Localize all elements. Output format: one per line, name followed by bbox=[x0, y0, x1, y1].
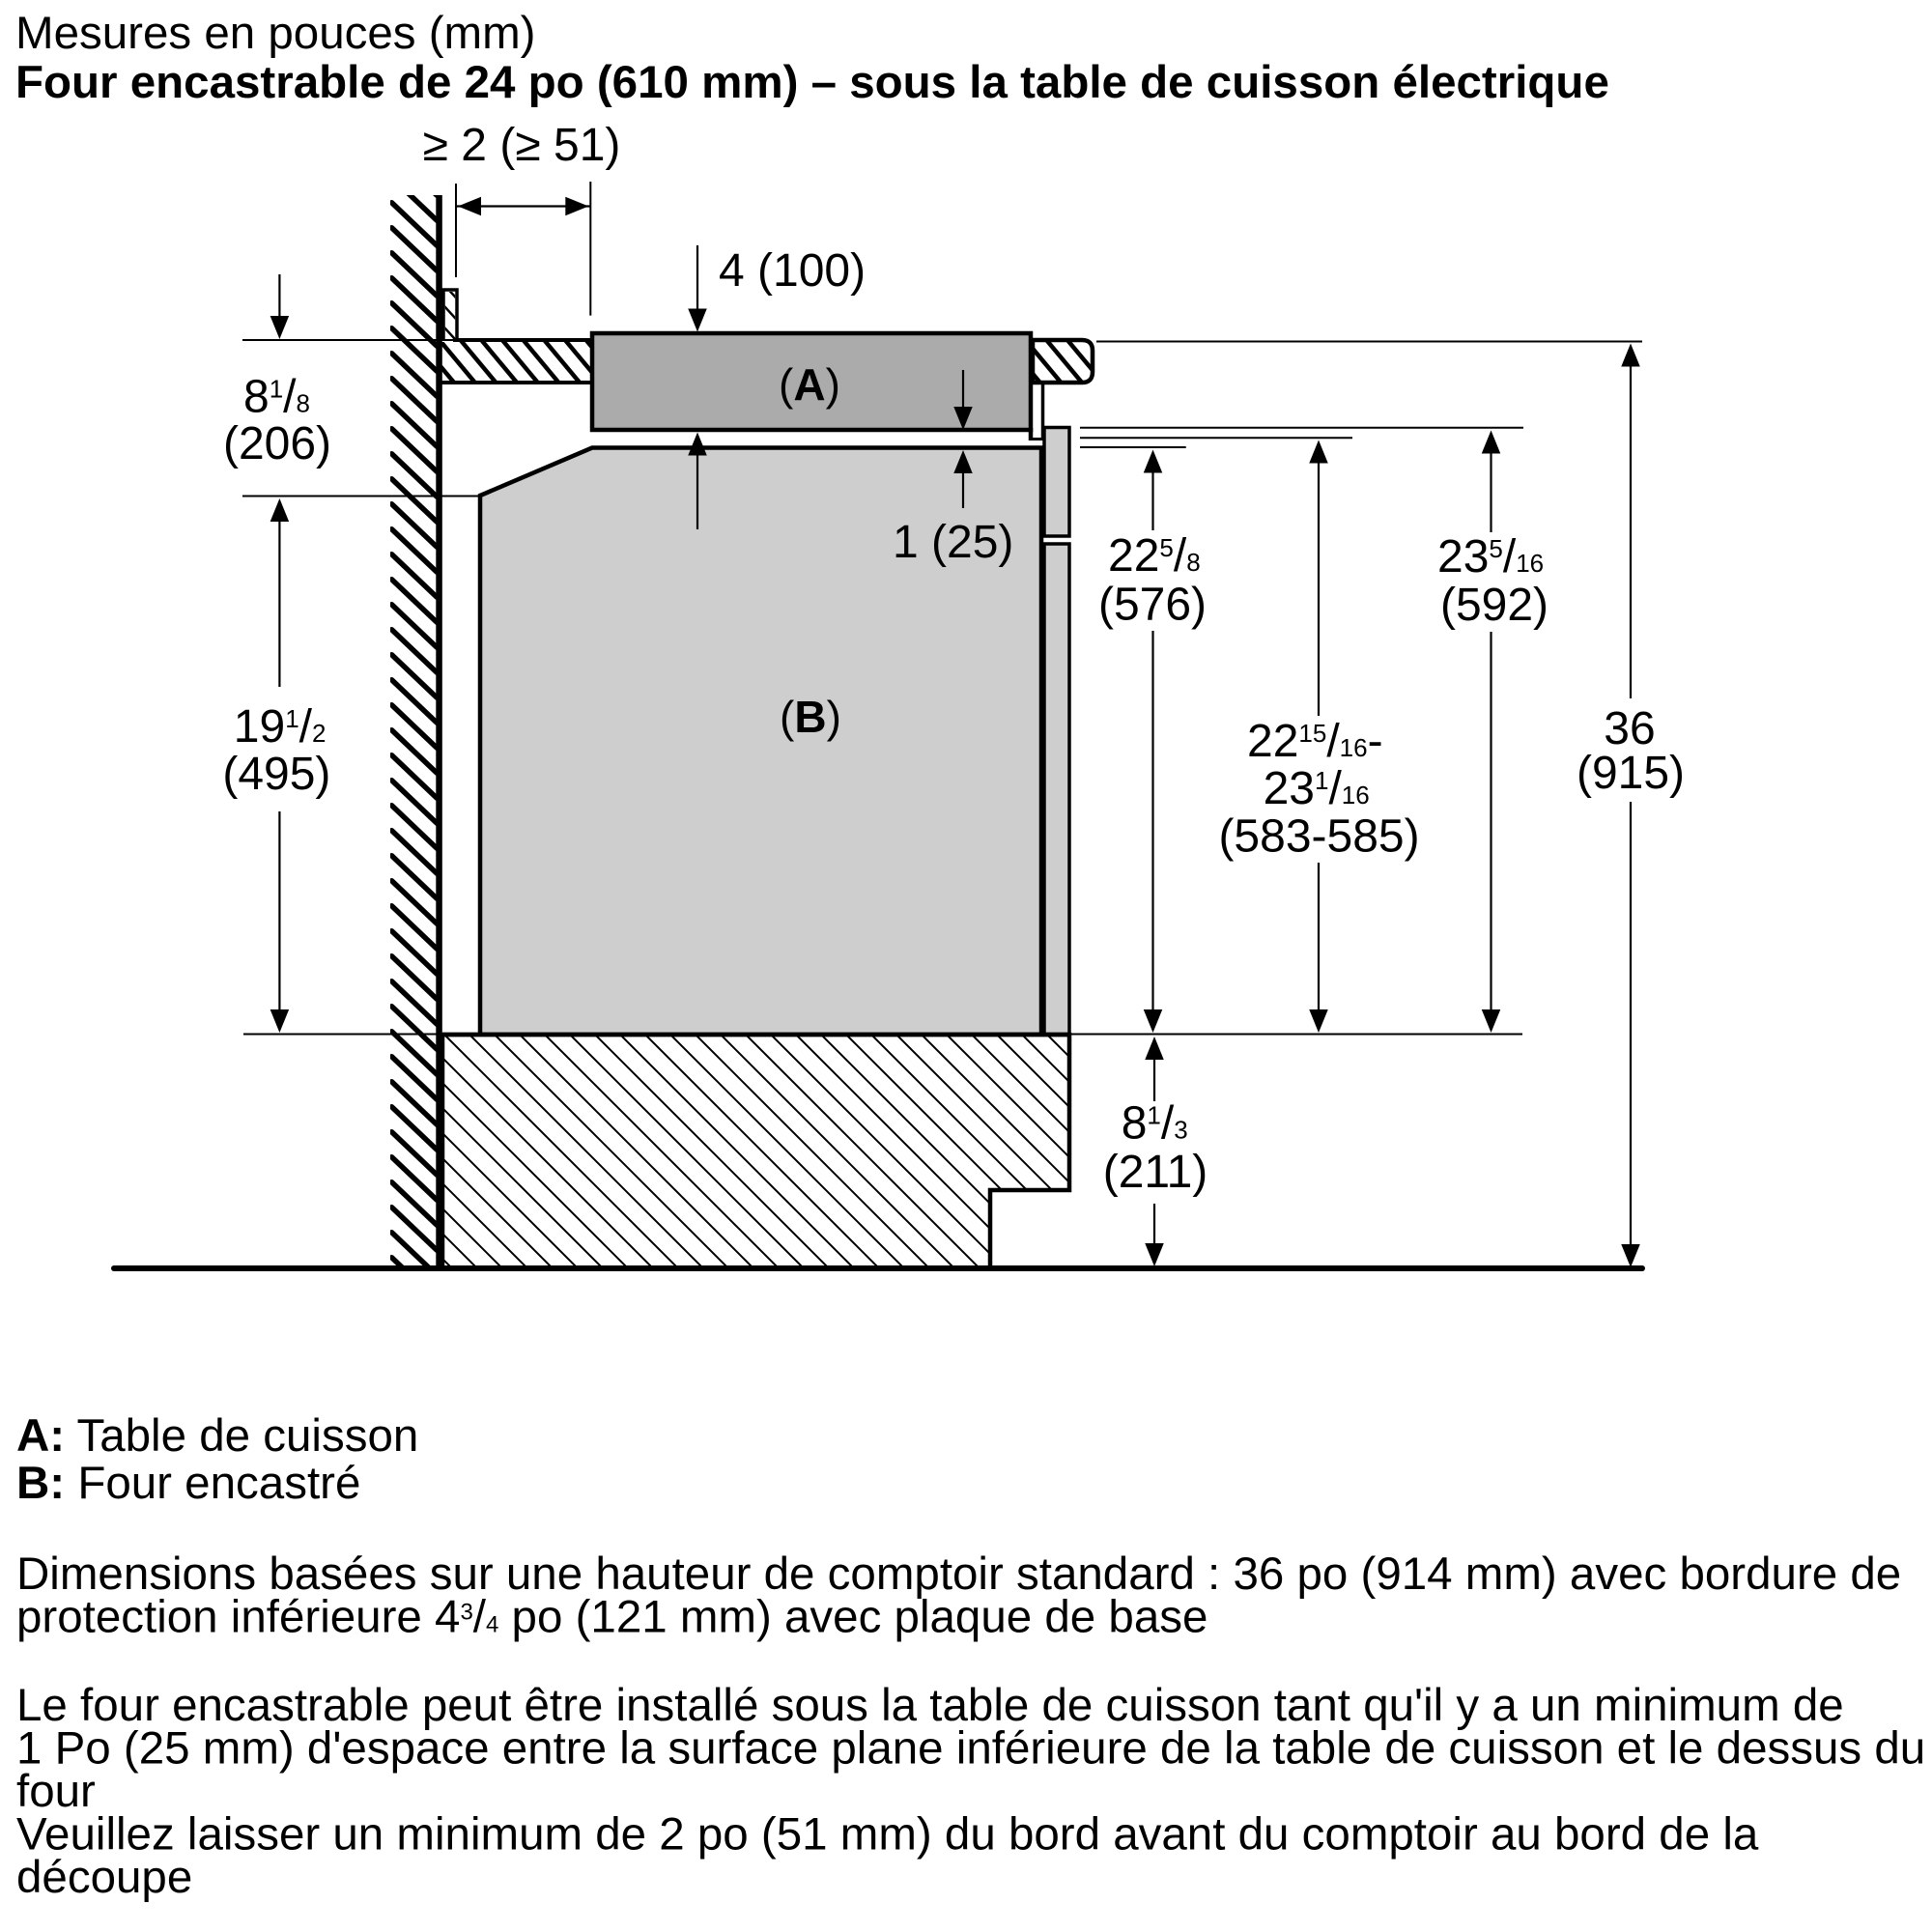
svg-text:(206): (206) bbox=[223, 418, 331, 469]
svg-text:(211): (211) bbox=[1103, 1147, 1208, 1198]
svg-text:(583-585): (583-585) bbox=[1218, 811, 1419, 863]
svg-text:(592): (592) bbox=[1440, 580, 1548, 631]
svg-text:1 Po (25 mm) d'espace entre la: 1 Po (25 mm) d'espace entre la surface p… bbox=[16, 1723, 1925, 1775]
svg-text:(576): (576) bbox=[1098, 580, 1207, 631]
svg-text:(A): (A) bbox=[779, 359, 840, 410]
svg-text:découpe: découpe bbox=[16, 1852, 192, 1903]
svg-text:(915): (915) bbox=[1577, 748, 1685, 799]
svg-text:Veuillez laisser un minimum de: Veuillez laisser un minimum de 2 po (51 … bbox=[16, 1809, 1759, 1861]
svg-text:≥ 2 (≥ 51): ≥ 2 (≥ 51) bbox=[423, 120, 621, 171]
svg-text:1 (25): 1 (25) bbox=[893, 517, 1013, 568]
svg-text:Four encastrable de 24 po (610: Four encastrable de 24 po (610 mm) – sou… bbox=[15, 57, 1609, 108]
svg-text:B: Four encastré: B: Four encastré bbox=[16, 1458, 360, 1509]
svg-text:4 (100): 4 (100) bbox=[719, 245, 866, 297]
svg-text:protection inférieure 43/4 po: protection inférieure 43/4 po (121 mm) a… bbox=[16, 1592, 1207, 1643]
svg-text:(495): (495) bbox=[222, 749, 330, 800]
svg-text:(B): (B) bbox=[780, 692, 841, 742]
svg-text:Mesures en pouces (mm): Mesures en pouces (mm) bbox=[15, 8, 536, 59]
svg-text:A: Table de cuisson: A: Table de cuisson bbox=[16, 1410, 418, 1462]
